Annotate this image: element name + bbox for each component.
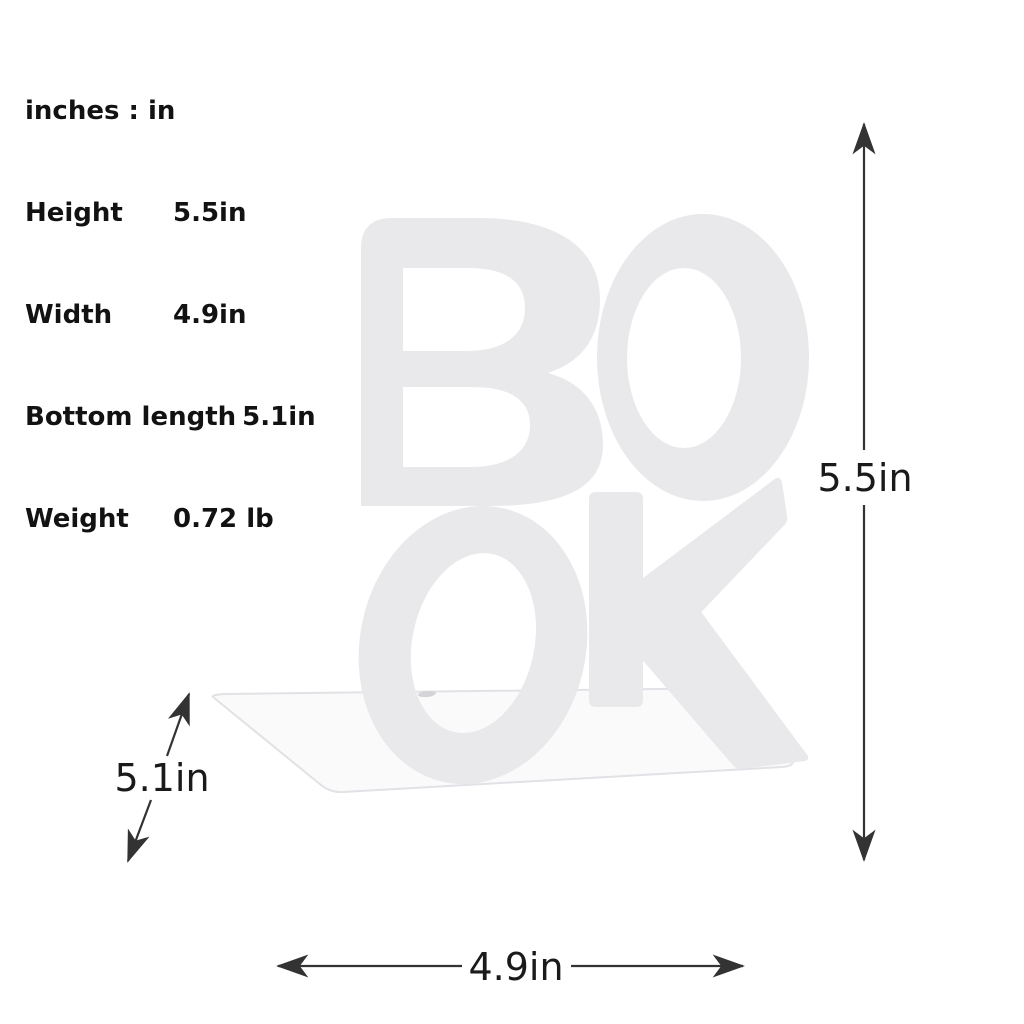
bookend-illustration: 5.5in 4.9in 5.1in	[0, 0, 1024, 1024]
bottom-length-arrow-upper-segment	[167, 694, 189, 756]
letter-b-shape	[362, 219, 602, 505]
width-dimension-label: 4.9in	[468, 945, 563, 989]
height-dimension: 5.5in	[817, 124, 912, 860]
bottom-length-arrow-lower-segment	[128, 800, 151, 861]
width-dimension: 4.9in	[278, 945, 743, 989]
height-dimension-label: 5.5in	[817, 456, 912, 500]
bottom-length-dimension: 5.1in	[114, 694, 209, 861]
letter-o-top-shape	[598, 215, 808, 500]
product-dimension-diagram: inches : in Height5.5in Width4.9in Botto…	[0, 0, 1024, 1024]
bottom-length-dimension-label: 5.1in	[114, 756, 209, 800]
